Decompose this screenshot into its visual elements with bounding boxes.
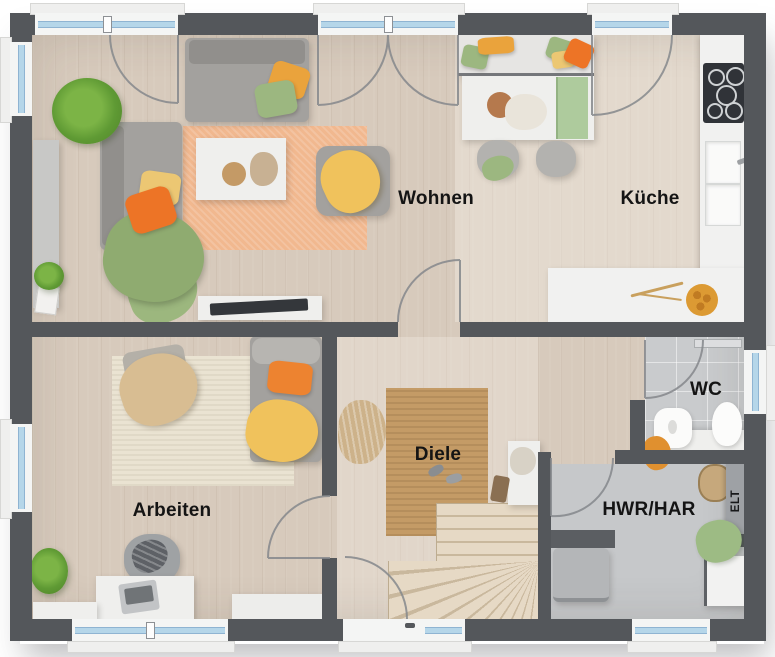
palm-plant (52, 78, 122, 144)
wall-kitchen-hall (460, 322, 744, 337)
floor-plan: Wohnen Küche Arbeiten Diele WC HWR/HAR E… (0, 0, 775, 657)
burner-ring (726, 67, 745, 86)
room-label-wc: WC (690, 379, 722, 401)
window-mullion (146, 622, 155, 639)
fruit-bowl (686, 284, 718, 316)
towel-rail (694, 339, 742, 348)
window-sill (67, 641, 235, 653)
entrance-step (338, 641, 472, 653)
window-sill (766, 345, 775, 421)
washing-machine (553, 548, 609, 602)
window-mullion (103, 16, 112, 33)
kitchen-door (592, 13, 672, 35)
room-label-kitchen: Küche (620, 188, 679, 210)
small-plant (34, 262, 64, 290)
room-label-hallway: Diele (415, 444, 461, 466)
room-label-electrical: ELT (730, 490, 742, 512)
dining-chair-2 (536, 141, 576, 177)
room-label-utility: HWR/HAR (602, 499, 695, 521)
pillow-green (253, 79, 298, 119)
wc-sink-drain (668, 420, 677, 434)
bench-pillow-amber (477, 36, 514, 55)
sofa-backrest (189, 40, 305, 64)
window-wc-right (744, 350, 766, 414)
daybed-headrest (252, 338, 320, 364)
decor-bowl (222, 162, 246, 186)
stairs-upper-flight (436, 503, 540, 563)
daybed-pillow-orange (266, 360, 313, 396)
entrance-door-handle (405, 623, 415, 628)
burner-ring (725, 102, 743, 120)
terrace-door-handle (384, 16, 393, 33)
wall-right (744, 13, 766, 641)
burner-ring (707, 103, 723, 119)
wall-office-hall-upper (322, 337, 337, 496)
room-label-office: Arbeiten (133, 500, 212, 522)
office-sideboard (33, 602, 97, 620)
entrance-door (343, 619, 465, 641)
wall-office-hall-lower (322, 558, 337, 619)
burner-ring (708, 69, 725, 86)
kitchen-sink (705, 141, 741, 184)
wall-living-hall (32, 322, 398, 337)
office-plant (30, 548, 68, 594)
wall-utility-left (538, 452, 551, 619)
window-sill (627, 641, 717, 653)
window-left-living (10, 42, 32, 116)
toilet (712, 402, 742, 446)
kitchen-sink-2 (705, 184, 741, 226)
stairs-winder (388, 561, 540, 620)
dryer (704, 556, 745, 606)
table-runner (556, 77, 588, 139)
room-label-living: Wohnen (398, 188, 474, 210)
wall-wc-left (630, 400, 645, 450)
utility-counter (551, 530, 615, 548)
office-cabinet (232, 594, 324, 620)
wall-wc-utility (615, 450, 744, 464)
window-utility-bottom (632, 619, 710, 641)
window-left-office (10, 424, 32, 512)
